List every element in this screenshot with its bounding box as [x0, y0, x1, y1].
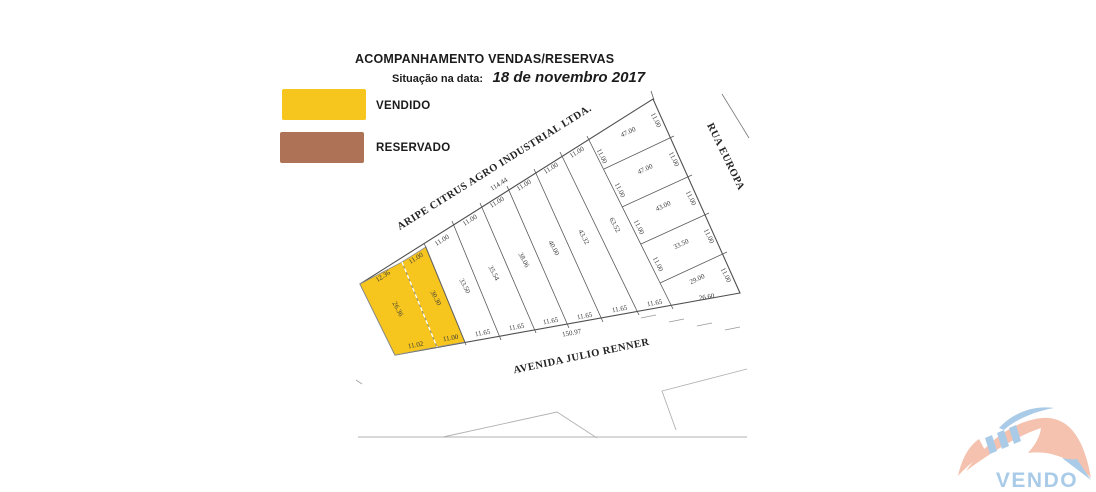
- measurement-label: 150.97: [561, 327, 582, 338]
- subdivision-plat-map: ARIPE CITRUS AGRO INDUSTRIAL LTDA.RUA EU…: [0, 0, 1096, 492]
- measurement-label: 11.00: [649, 111, 663, 129]
- measurement-label: 38.06: [517, 251, 532, 269]
- measurement-label: 11.65: [508, 322, 525, 333]
- street-label: RUA EUROPA: [704, 122, 746, 193]
- ground-mark: [356, 380, 362, 384]
- street-label: AVENIDA JULIO RENNER: [512, 337, 650, 377]
- measurement-label: 63.52: [608, 216, 623, 234]
- measurement-label: 43.32: [577, 228, 592, 246]
- measurement-label: 11.00: [461, 213, 479, 228]
- measurement-label: 11.00: [702, 227, 716, 245]
- ground-line: [662, 369, 747, 430]
- measurement-label: 11.00: [568, 145, 586, 160]
- lot-line: [560, 152, 639, 315]
- measurement-label: 11.65: [474, 328, 491, 339]
- measurement-label: 11.00: [719, 266, 733, 284]
- logo-wordmark: VENDO: [996, 469, 1078, 492]
- measurement-label: 33.50: [672, 237, 690, 251]
- lot-line: [534, 169, 603, 322]
- measurement-label: 11.00: [515, 178, 533, 193]
- road-dash: [725, 327, 740, 330]
- measurement-label: 11.00: [613, 181, 627, 199]
- measurement-label: 40.00: [547, 239, 562, 257]
- road-dash: [697, 323, 712, 326]
- lot-line: [622, 175, 692, 207]
- measurement-label: 11.65: [611, 304, 628, 315]
- measurement-label: 11.00: [651, 255, 665, 273]
- measurement-label: 114.44: [489, 176, 510, 193]
- measurement-label: 26.60: [698, 292, 715, 303]
- measurement-label: 11.00: [667, 150, 681, 168]
- ground-line: [443, 412, 597, 438]
- lot-line: [641, 213, 709, 244]
- measurement-label: 29.00: [688, 272, 706, 286]
- measurement-label: 33.50: [458, 277, 473, 295]
- measurement-label: 43.00: [654, 199, 672, 213]
- measurement-label: 35.54: [487, 264, 502, 282]
- measurement-label: 11.65: [542, 316, 559, 327]
- road-dash: [669, 319, 684, 322]
- road-dash: [641, 315, 656, 318]
- measurement-label: 11.00: [433, 233, 451, 248]
- measurement-label: 47.00: [619, 125, 637, 139]
- street-label: ARIPE CITRUS AGRO INDUSTRIAL LTDA.: [396, 103, 594, 233]
- measurement-label: 11.00: [542, 161, 560, 176]
- measurement-label: 11.00: [684, 189, 698, 207]
- apex-tick: [651, 91, 654, 100]
- lot-line: [604, 136, 674, 169]
- measurement-label: 47.00: [636, 162, 654, 176]
- measurement-label: 11.00: [632, 218, 646, 236]
- lot-line: [507, 186, 569, 328]
- street-edge: [722, 94, 749, 138]
- page: ACOMPANHAMENTO VENDAS/RESERVAS Situação …: [0, 0, 1096, 492]
- measurement-label: 11.00: [488, 195, 506, 210]
